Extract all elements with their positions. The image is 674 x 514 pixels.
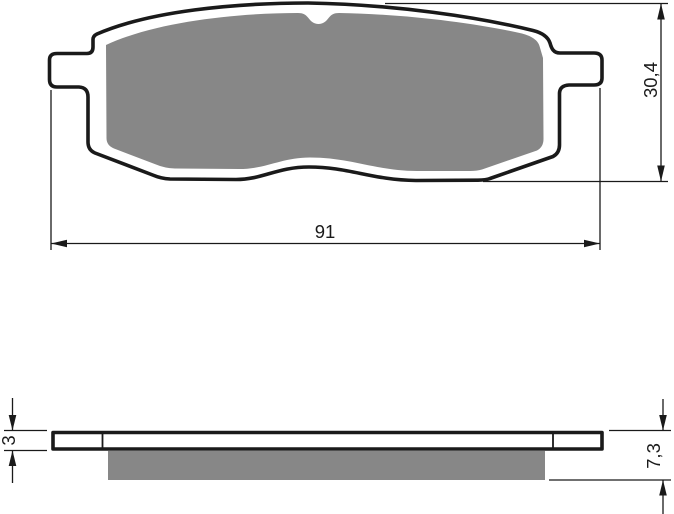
- front-view-friction-material: [106, 13, 544, 171]
- plate-thickness-arrow-up-icon: [9, 451, 17, 467]
- plate-thickness-label: 3: [0, 435, 19, 445]
- height-arrow-top-icon: [657, 4, 665, 20]
- height-dimension-label: 30,4: [640, 62, 661, 98]
- width-arrow-right-icon: [584, 240, 600, 248]
- drawing-canvas: 91 30,4: [0, 0, 674, 514]
- side-view-friction-material: [108, 451, 545, 481]
- front-view: 91 30,4: [50, 3, 669, 250]
- height-arrow-bottom-icon: [657, 166, 665, 182]
- total-thickness-arrow-up-icon: [659, 480, 667, 496]
- brake-pad-technical-drawing: 91 30,4: [0, 0, 674, 514]
- side-view-backing-plate: [53, 433, 602, 450]
- side-view-plate-thickness-dimension: 3: [0, 398, 47, 483]
- width-arrow-left-icon: [51, 240, 67, 248]
- plate-thickness-arrow-down-icon: [9, 415, 17, 431]
- side-profile-view: 3 7,3: [0, 398, 671, 514]
- total-thickness-arrow-down-icon: [659, 415, 667, 431]
- side-view-total-thickness-dimension: 7,3: [549, 399, 671, 514]
- total-thickness-label: 7,3: [643, 443, 664, 469]
- width-dimension-label: 91: [315, 221, 336, 242]
